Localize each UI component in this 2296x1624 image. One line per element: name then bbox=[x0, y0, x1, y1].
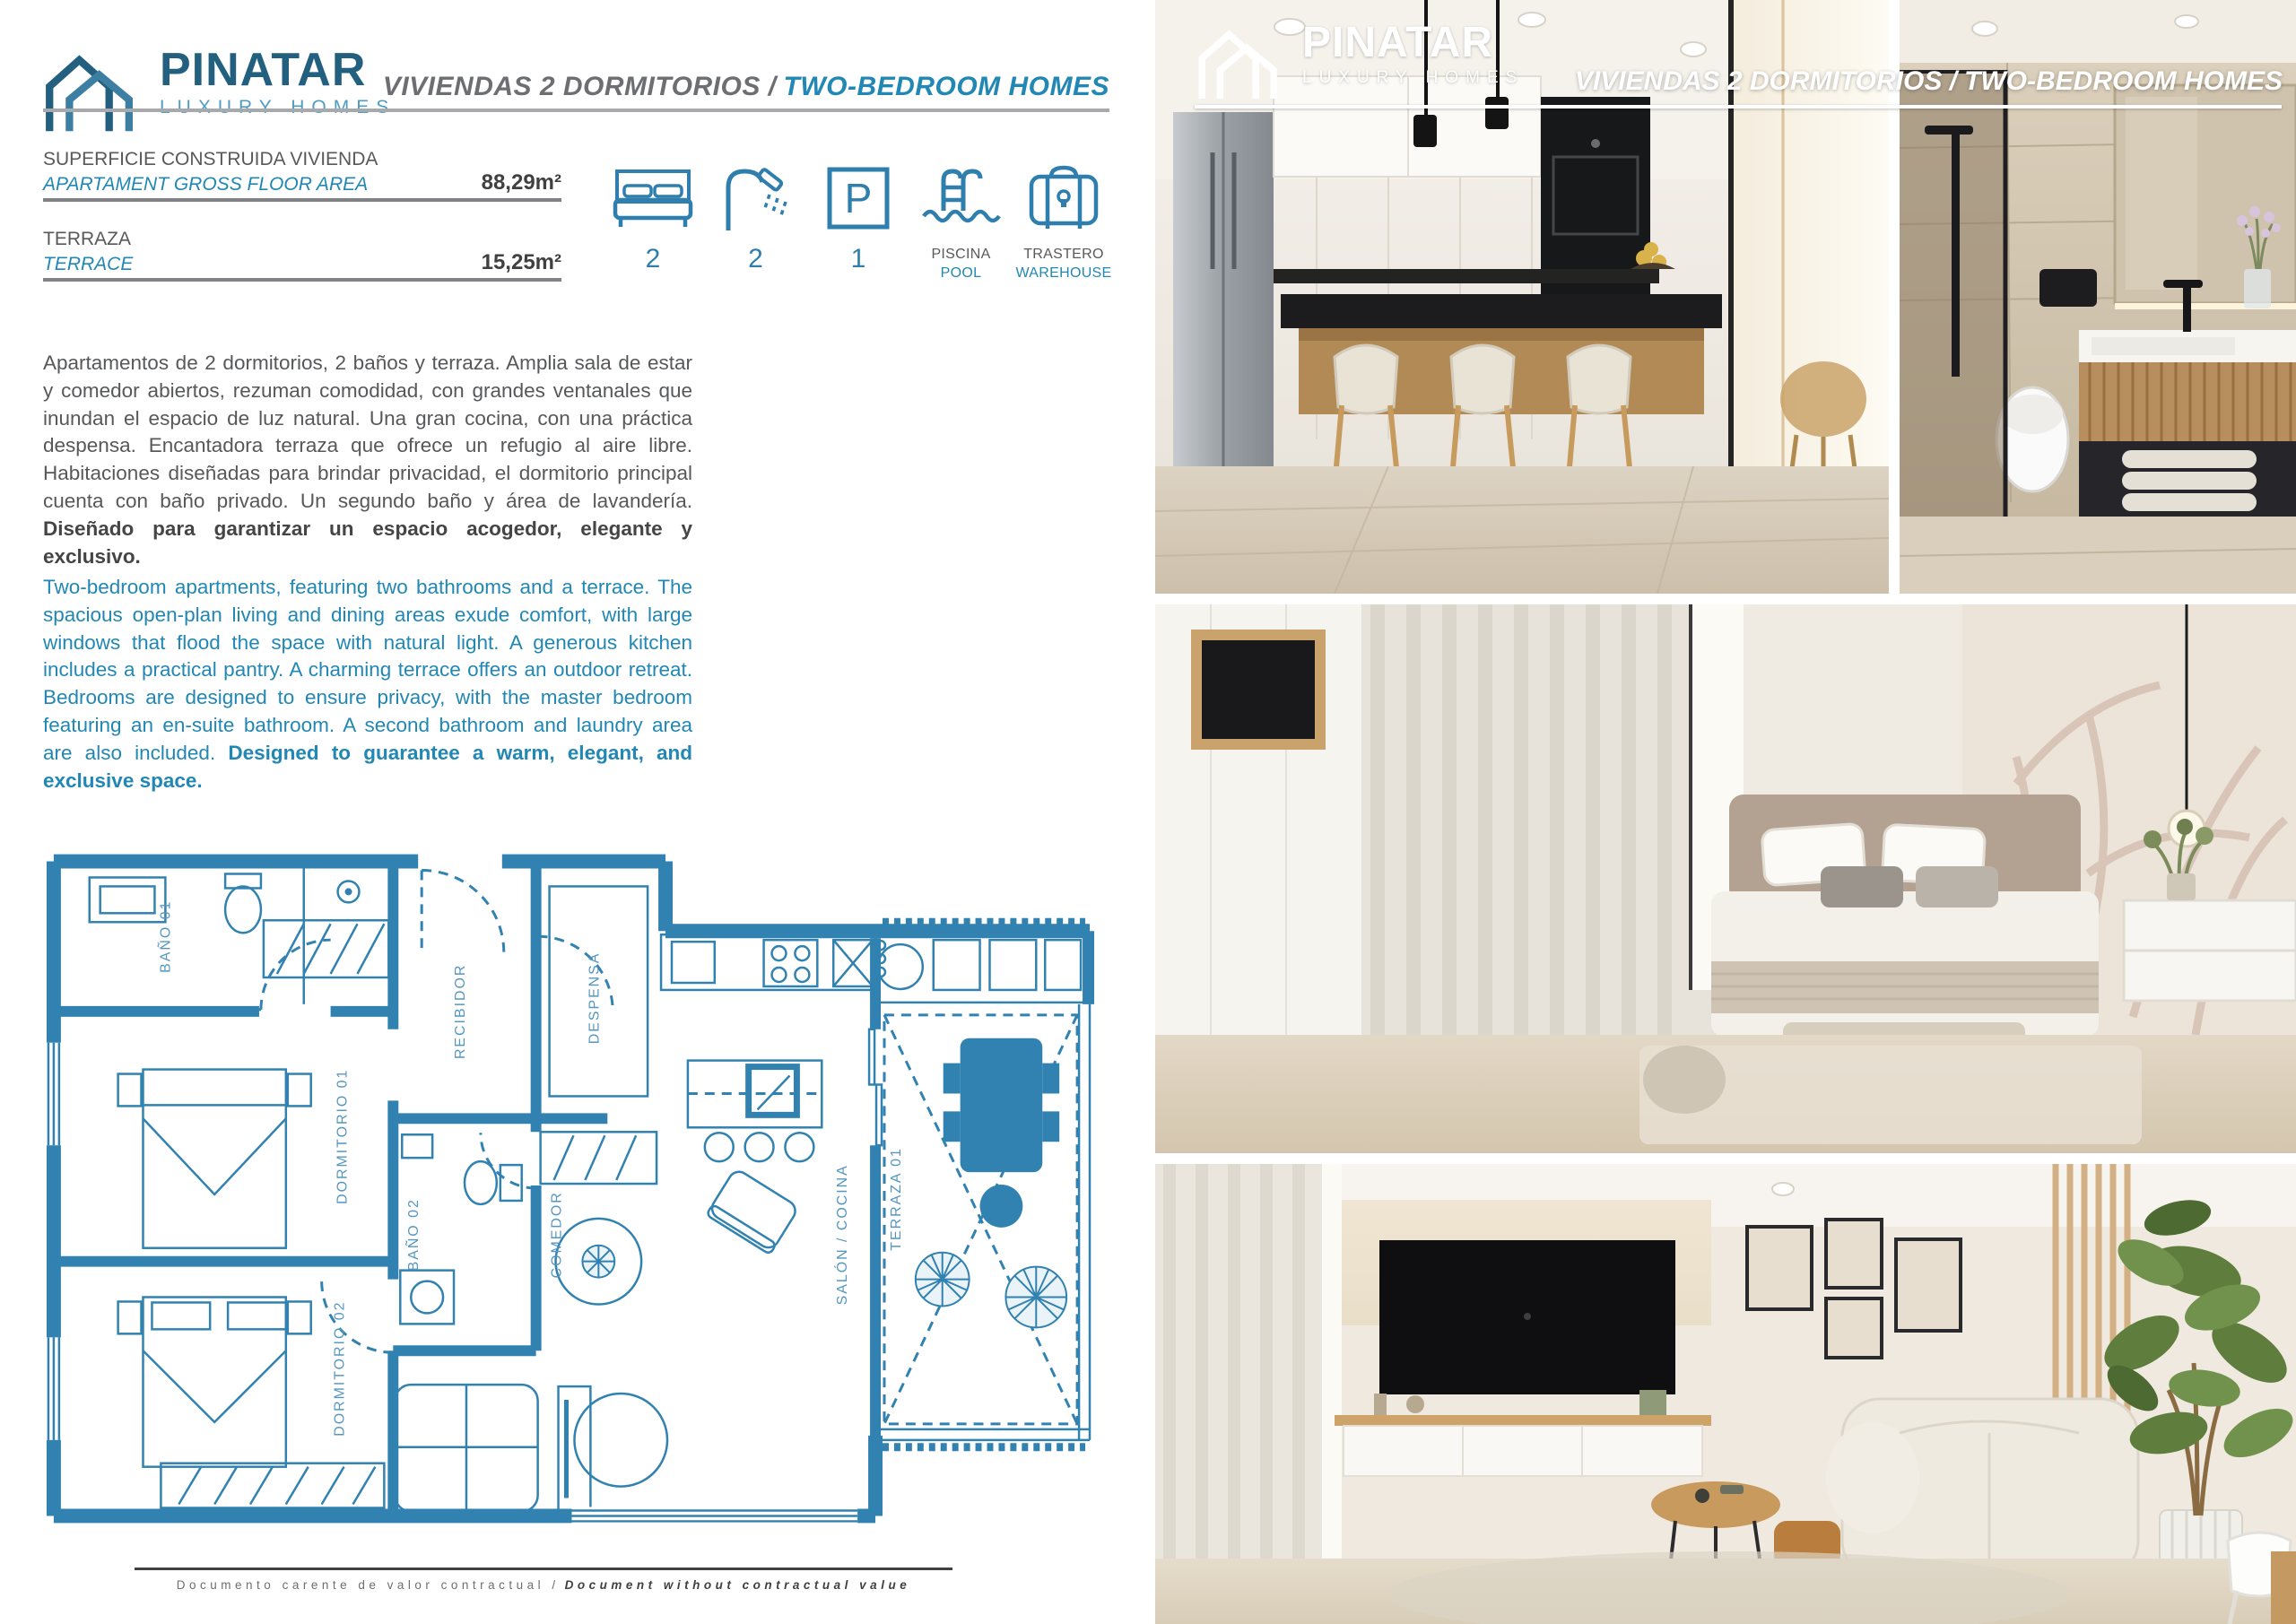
floor-plan: BAÑO 01 DORMITORIO 01 DORMITORIO 02 BAÑO… bbox=[36, 850, 1094, 1530]
spec-label-es: SUPERFICIE CONSTRUIDA VIVIENDA bbox=[43, 149, 378, 170]
brochure-page: PINATAR LUXURY HOMES VIVIENDAS 2 DORMITO… bbox=[0, 0, 2296, 1624]
living-room-photo bbox=[1155, 1164, 2296, 1624]
overlay-divider bbox=[1195, 105, 2282, 109]
disclaimer-es: Documento carente de valor contractual / bbox=[177, 1578, 560, 1592]
warehouse-icon bbox=[1024, 164, 1103, 232]
feature-bathrooms: 2 bbox=[706, 164, 806, 282]
room-label-bano1: BAÑO 01 bbox=[155, 900, 173, 973]
spec-label-en: TERRACE bbox=[43, 254, 133, 275]
spec-label-es: TERRAZA bbox=[43, 229, 133, 250]
warehouse-label-en: WAREHOUSE bbox=[1015, 265, 1111, 282]
brand-name: PINATAR bbox=[1302, 22, 1524, 65]
disclaimer-en: Document without contractual value bbox=[565, 1578, 911, 1592]
description-english: Two-bedroom apartments, featuring two ba… bbox=[43, 574, 692, 795]
warehouse-label-es: TRASTERO bbox=[1023, 247, 1104, 263]
pool-icon bbox=[920, 164, 1003, 232]
header-divider bbox=[43, 109, 1109, 112]
pinatar-logo-overlay: PINATAR LUXURY HOMES bbox=[1195, 22, 1524, 109]
room-label-recibidor: RECIBIDOR bbox=[453, 964, 468, 1059]
pinatar-logo: PINATAR LUXURY HOMES bbox=[41, 47, 396, 136]
room-label-comedor: COMEDOR bbox=[550, 1191, 565, 1278]
description-spanish: Apartamentos de 2 dormitorios, 2 baños y… bbox=[43, 350, 692, 571]
description-spanish-bold: Diseñado para garantizar un espacio acog… bbox=[43, 517, 692, 568]
page-title: VIVIENDAS 2 DORMITORIOS /TWO-BEDROOM HOM… bbox=[377, 72, 1109, 102]
shower-icon bbox=[719, 164, 793, 232]
page-title-en: TWO-BEDROOM HOMES bbox=[1964, 66, 2283, 96]
room-label-dormitorio2: DORMITORIO 02 bbox=[333, 1301, 348, 1437]
bedroom-photo bbox=[1155, 604, 2296, 1153]
room-label-terraza: TERRAZA 01 bbox=[889, 1147, 904, 1250]
page-title-en: TWO-BEDROOM HOMES bbox=[784, 72, 1109, 101]
spec-label-en: APARTAMENT GROSS FLOOR AREA bbox=[43, 174, 378, 195]
description-spanish-body: Apartamentos de 2 dormitorios, 2 baños y… bbox=[43, 352, 692, 512]
feature-warehouse: TRASTERO WAREHOUSE bbox=[1013, 164, 1114, 282]
area-specs: SUPERFICIE CONSTRUIDA VIVIENDA APARTAMEN… bbox=[43, 149, 561, 308]
parking-count: 1 bbox=[851, 244, 866, 274]
room-label-bano2: BAÑO 02 bbox=[404, 1198, 422, 1271]
contractual-disclaimer: Documento carente de valor contractual /… bbox=[135, 1568, 952, 1592]
bed-icon bbox=[612, 164, 694, 232]
description-english-body: Two-bedroom apartments, featuring two ba… bbox=[43, 576, 692, 764]
brand-tagline: LUXURY HOMES bbox=[160, 97, 396, 118]
pool-label-es: PISCINA bbox=[931, 247, 990, 263]
house-logo-icon bbox=[1195, 22, 1291, 109]
page-title-es: VIVIENDAS 2 DORMITORIOS / bbox=[1575, 66, 1957, 96]
spec-value: 88,29m² bbox=[482, 170, 561, 195]
house-logo-icon bbox=[41, 47, 149, 136]
room-label-despensa: DESPENSA bbox=[587, 952, 602, 1045]
feature-parking: P 1 bbox=[808, 164, 909, 282]
feature-pool: PISCINA POOL bbox=[911, 164, 1012, 282]
page-title-overlay: VIVIENDAS 2 DORMITORIOS /TWO-BEDROOM HOM… bbox=[1525, 66, 2283, 97]
feature-icons-row: 2 2 P bbox=[603, 164, 1114, 282]
svg-text:P: P bbox=[845, 175, 873, 221]
spec-row-gross-floor-area: SUPERFICIE CONSTRUIDA VIVIENDA APARTAMEN… bbox=[43, 149, 561, 202]
room-label-salon: SALÓN / COCINA bbox=[833, 1164, 850, 1305]
spec-row-terrace: TERRAZA TERRACE 15,25m² bbox=[43, 229, 561, 282]
brand-name: PINATAR bbox=[160, 47, 396, 93]
parking-icon: P bbox=[824, 164, 892, 232]
room-label-dormitorio1: DORMITORIO 01 bbox=[335, 1069, 351, 1204]
feature-bedrooms: 2 bbox=[603, 164, 703, 282]
bathrooms-count: 2 bbox=[748, 244, 763, 274]
brand-tagline: LUXURY HOMES bbox=[1302, 68, 1524, 88]
pool-label-en: POOL bbox=[941, 265, 982, 282]
spec-value: 15,25m² bbox=[482, 250, 561, 275]
bedrooms-count: 2 bbox=[646, 244, 661, 274]
page-title-es: VIVIENDAS 2 DORMITORIOS / bbox=[383, 72, 777, 101]
